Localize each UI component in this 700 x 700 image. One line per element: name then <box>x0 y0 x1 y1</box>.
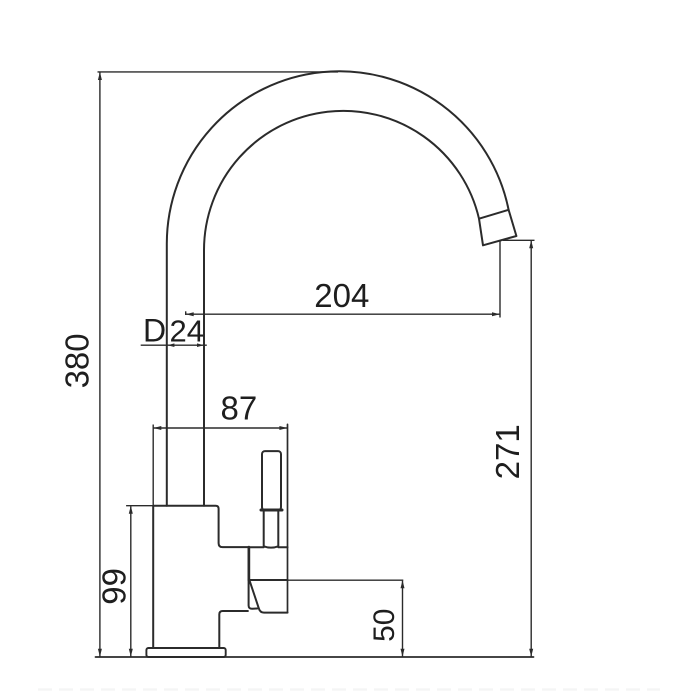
svg-text:380: 380 <box>58 333 95 388</box>
svg-text:271: 271 <box>489 424 526 479</box>
svg-text:204: 204 <box>314 277 369 314</box>
svg-text:50: 50 <box>368 609 401 642</box>
svg-text:24: 24 <box>170 314 204 349</box>
svg-text:87: 87 <box>221 389 258 426</box>
svg-text:99: 99 <box>95 568 132 605</box>
svg-text:D: D <box>143 313 166 349</box>
